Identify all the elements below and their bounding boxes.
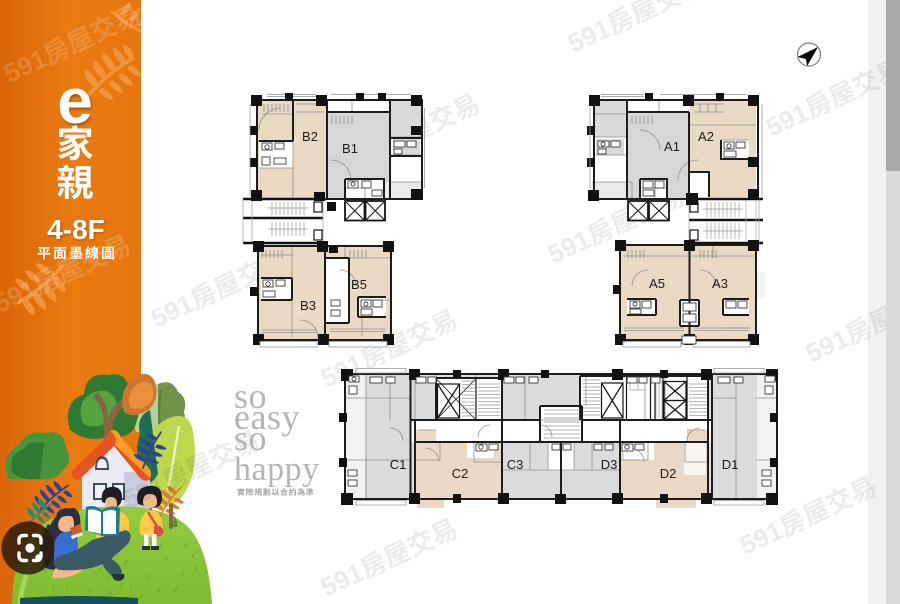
svg-text:A3: A3 — [712, 276, 728, 291]
svg-text:4-8F: 4-8F — [47, 214, 105, 245]
svg-text:A1: A1 — [664, 139, 680, 154]
svg-text:D2: D2 — [660, 466, 677, 481]
svg-text:C3: C3 — [507, 457, 524, 472]
svg-text:happy: happy — [234, 451, 320, 488]
svg-text:C2: C2 — [452, 466, 469, 481]
svg-text:B2: B2 — [302, 129, 318, 144]
svg-text:D3: D3 — [601, 457, 618, 472]
svg-text:A5: A5 — [649, 276, 665, 291]
svg-text:C1: C1 — [390, 457, 407, 472]
svg-text:B5: B5 — [351, 277, 367, 292]
svg-text:B1: B1 — [342, 141, 358, 156]
svg-text:D1: D1 — [722, 457, 739, 472]
svg-text:A2: A2 — [698, 129, 714, 144]
svg-text:B3: B3 — [300, 298, 316, 313]
